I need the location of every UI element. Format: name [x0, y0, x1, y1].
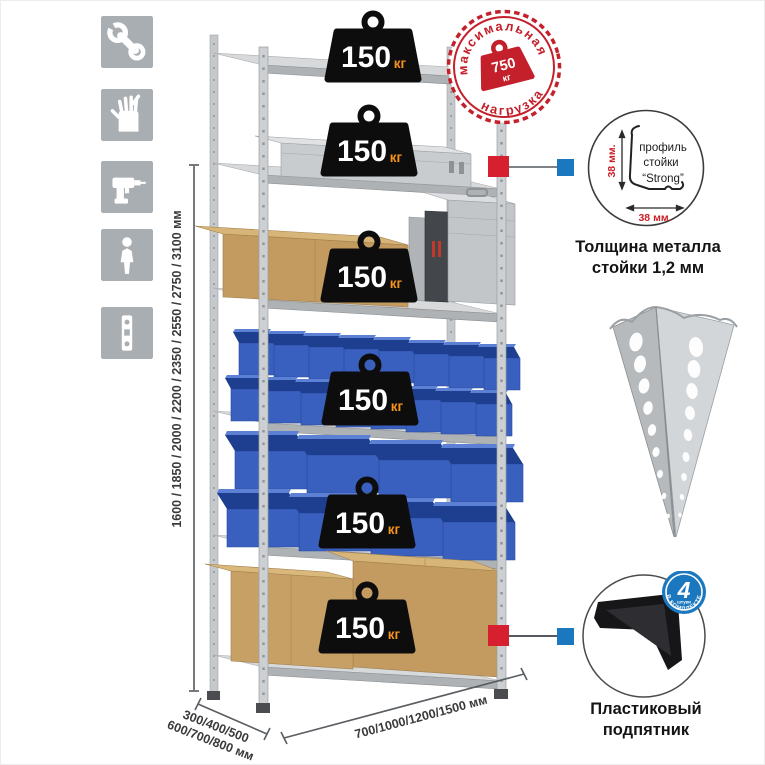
kit-count-badge: 4 штуки в комплекте — [662, 571, 706, 614]
plastic-foot-diagram: 4 штуки в комплекте — [579, 571, 709, 701]
corner-post-image — [598, 297, 748, 547]
svg-text:стойки: стойки — [643, 157, 678, 169]
svg-text:кг: кг — [388, 522, 401, 537]
bottom-connector-line — [506, 635, 561, 637]
svg-text:кг: кг — [394, 56, 407, 71]
profile-dim-horizontal: 38 мм. — [638, 212, 671, 224]
perforated-profile-icon — [101, 307, 153, 359]
post-profile-diagram: 38 мм. 38 мм. профиль стойки “Strong” — [586, 108, 706, 228]
svg-text:150: 150 — [337, 135, 387, 168]
bottom-dimension-lines — [141, 656, 561, 764]
svg-text:150: 150 — [337, 261, 387, 294]
svg-text:150: 150 — [335, 612, 385, 645]
svg-text:“Strong”: “Strong” — [642, 173, 684, 185]
product-infographic: 1600 / 1850 / 2000 / 2200 / 2350 / 2550 … — [0, 0, 765, 765]
svg-text:кг: кг — [390, 276, 403, 291]
svg-text:профиль: профиль — [639, 142, 687, 154]
foot-caption: Пластиковый подпятник — [571, 699, 721, 741]
top-connector-blue-square — [557, 159, 574, 176]
profile-caption: Толщина металла стойки 1,2 мм — [569, 237, 727, 279]
shelving-rack-illustration: 150кг 150кг 150кг 150кг 150кг 150кг макс… — [181, 5, 566, 725]
svg-text:150: 150 — [338, 384, 388, 417]
svg-text:кг: кг — [391, 399, 404, 414]
svg-text:кг: кг — [388, 627, 401, 642]
bottom-connector-red-square — [488, 625, 509, 646]
svg-text:штуки: штуки — [677, 600, 691, 605]
profile-dim-vertical: 38 мм. — [606, 144, 618, 177]
svg-text:кг: кг — [390, 150, 403, 165]
bottom-connector-blue-square — [557, 628, 574, 645]
top-connector-red-square — [488, 156, 509, 177]
person-icon — [101, 229, 153, 281]
wrench-icon — [101, 16, 153, 68]
gloves-icon — [101, 89, 153, 141]
top-connector-line — [506, 166, 561, 168]
svg-text:150: 150 — [335, 507, 385, 540]
max-load-stamp: максимальная нагрузка 750 кг — [437, 5, 566, 134]
svg-text:150: 150 — [341, 41, 391, 74]
drill-icon — [101, 161, 153, 213]
